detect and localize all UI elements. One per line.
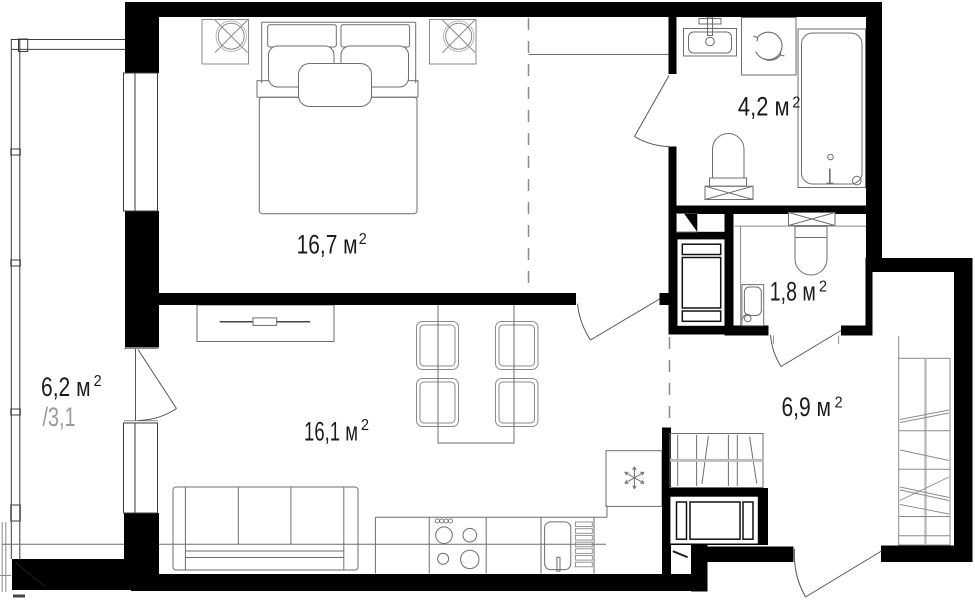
svg-text:2: 2 [359, 231, 367, 248]
svg-text:2: 2 [361, 417, 369, 434]
svg-text:/3,1: /3,1 [43, 402, 76, 432]
svg-text:2: 2 [94, 373, 102, 390]
svg-text:2: 2 [819, 279, 827, 296]
svg-text:6,9 м: 6,9 м [782, 392, 832, 422]
svg-text:16,7 м: 16,7 м [297, 230, 358, 260]
svg-text:2: 2 [835, 394, 843, 411]
svg-text:1,8 м: 1,8 м [770, 277, 816, 307]
svg-text:2: 2 [792, 95, 800, 112]
svg-text:6,2 м: 6,2 м [41, 372, 91, 402]
svg-text:4,2 м: 4,2 м [738, 92, 790, 122]
svg-text:16,1 м: 16,1 м [304, 416, 358, 446]
